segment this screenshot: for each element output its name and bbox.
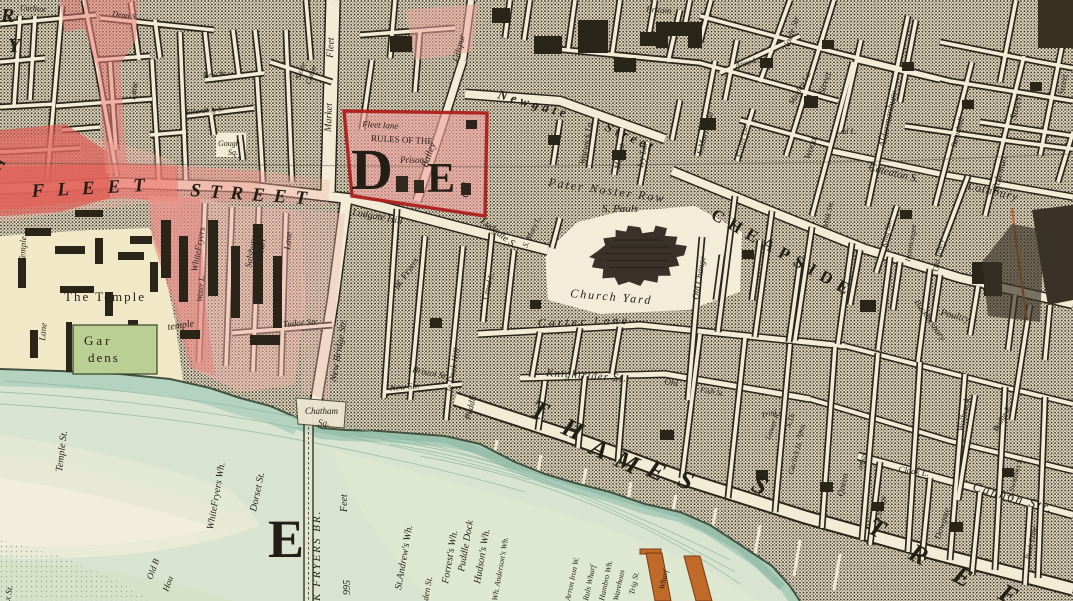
svg-text:Old: Old <box>460 181 473 198</box>
svg-text:Temple: Temple <box>17 236 28 262</box>
svg-text:S. Pauls: S. Pauls <box>602 203 638 215</box>
svg-text:Sq.: Sq. <box>228 148 238 157</box>
svg-text:R: R <box>0 5 14 27</box>
svg-text:Lad L.: Lad L. <box>835 127 857 136</box>
svg-text:Lane: Lane <box>282 231 294 251</box>
svg-text:995: 995 <box>342 580 353 595</box>
svg-text:Lane: Lane <box>37 322 49 342</box>
svg-text:Fleet lane: Fleet lane <box>361 119 399 131</box>
svg-text:Gough: Gough <box>218 139 240 148</box>
svg-text:Curlitor: Curlitor <box>20 3 48 14</box>
svg-text:Gar: Gar <box>84 333 113 348</box>
svg-text:Y: Y <box>8 35 22 57</box>
svg-text:Market: Market <box>323 103 335 133</box>
svg-text:Britain: Britain <box>646 4 673 16</box>
svg-text:dens: dens <box>88 350 120 365</box>
svg-text:D: D <box>351 137 393 202</box>
svg-text:Chatham: Chatham <box>305 406 339 416</box>
svg-text:K FRYERS BR.: K FRYERS BR. <box>311 510 323 601</box>
svg-text:The Temple: The Temple <box>64 289 146 304</box>
svg-text:E: E <box>268 509 304 569</box>
svg-text:Sq.: Sq. <box>318 418 329 428</box>
svg-text:Feet: Feet <box>339 494 350 513</box>
svg-text:Fleet: Fleet <box>325 37 337 59</box>
